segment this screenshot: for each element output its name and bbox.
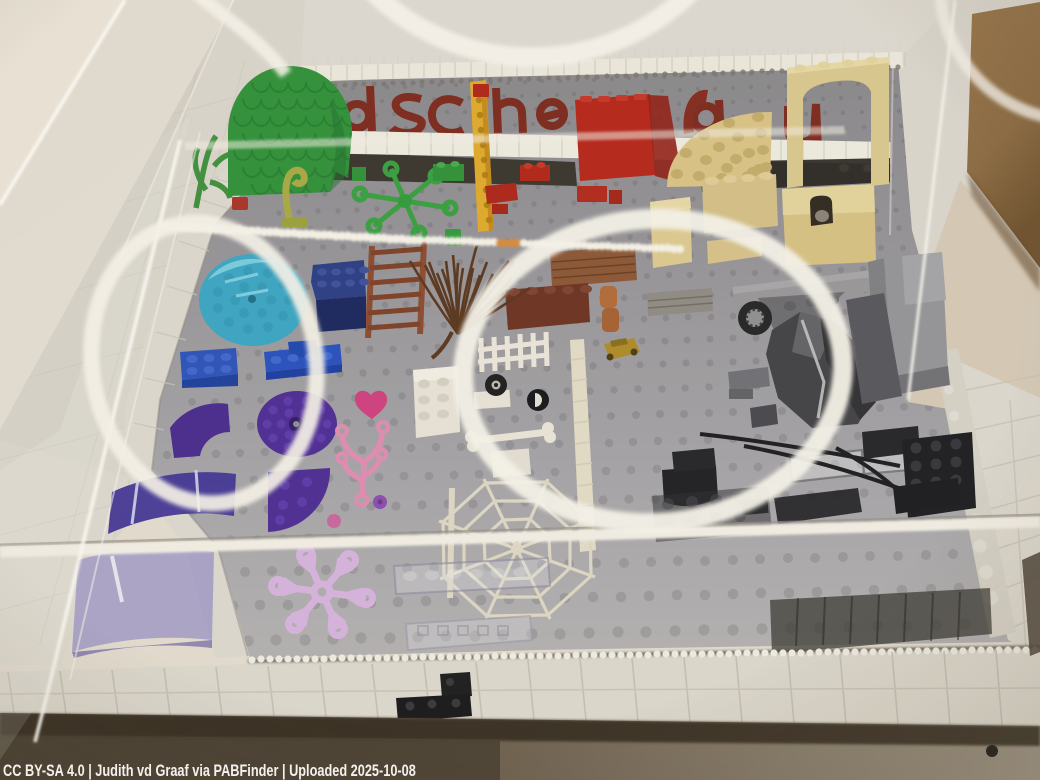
svg-text:CC BY-SA 4.0 | Judith vd Graaf: CC BY-SA 4.0 | Judith vd Graaf via PABFi…: [3, 761, 416, 780]
